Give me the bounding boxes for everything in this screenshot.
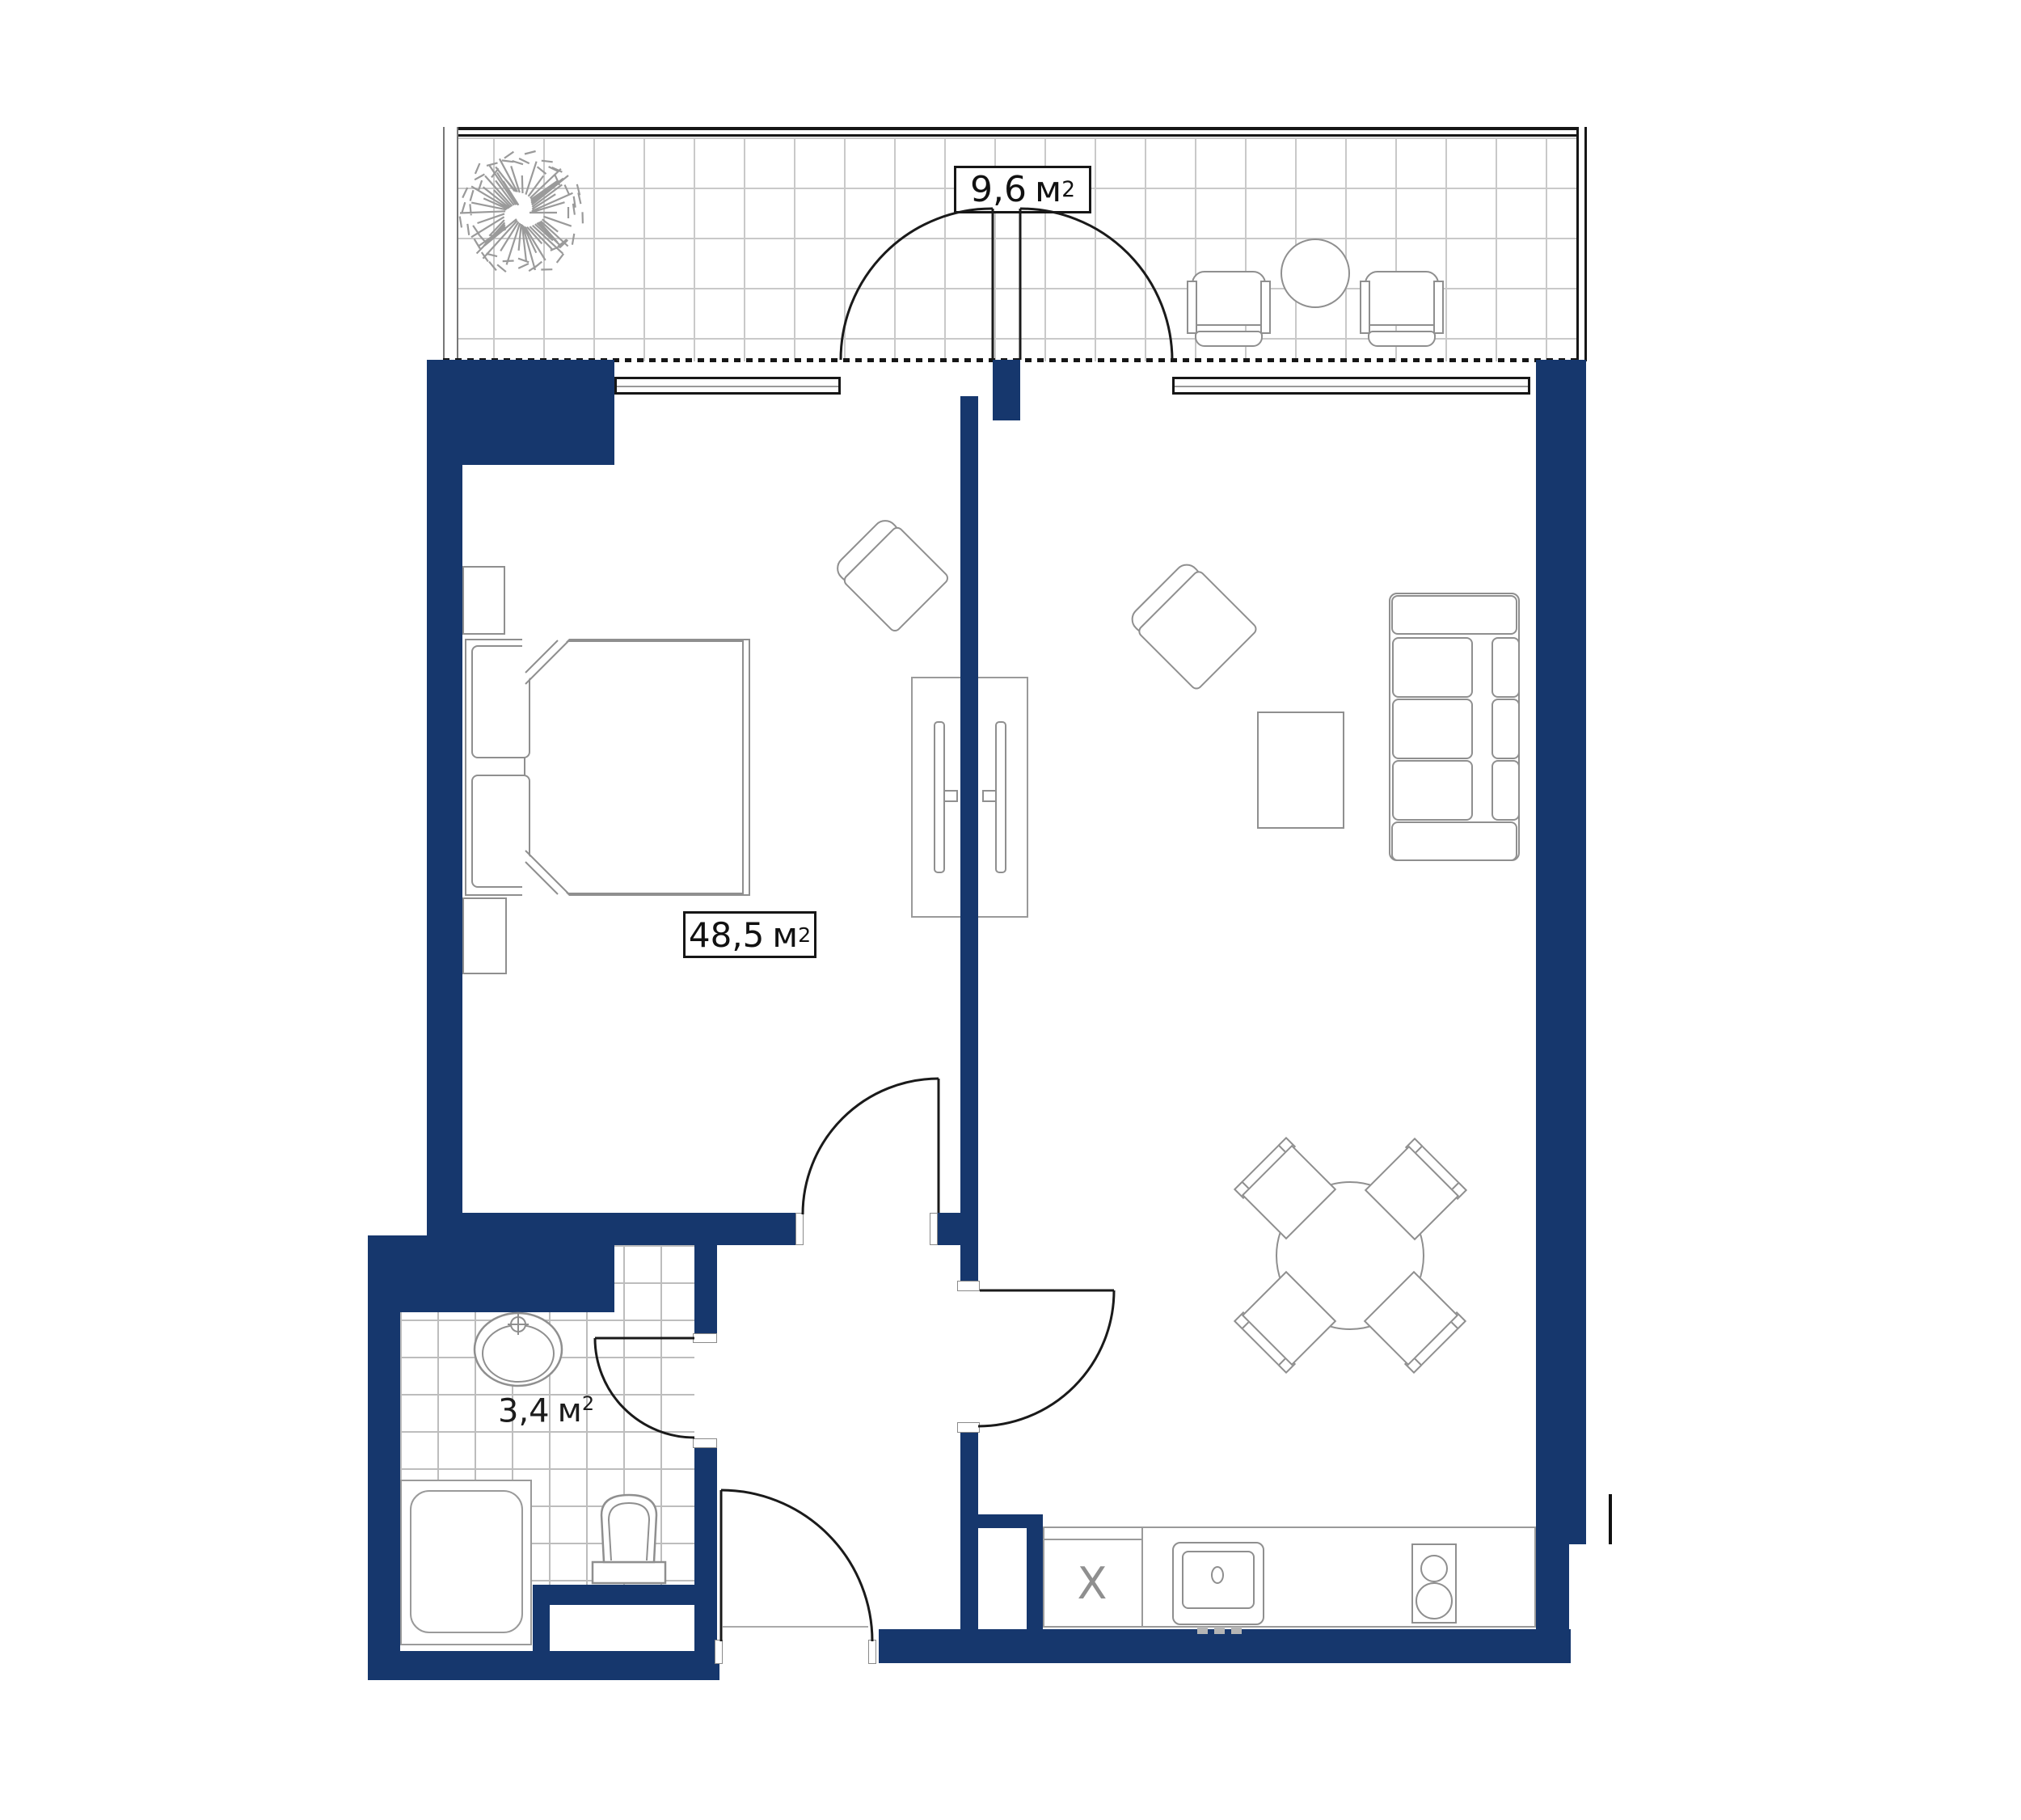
dimension-tick	[1609, 1494, 1612, 1544]
stove	[1411, 1543, 1457, 1624]
balcony-right-wall	[1576, 127, 1587, 361]
balcony-area-label: 9,6м2	[954, 166, 1091, 213]
wall	[1027, 1514, 1043, 1629]
kitchen-counter-divider	[1141, 1528, 1143, 1626]
wall	[879, 1629, 1571, 1663]
door-jamb	[868, 1640, 876, 1664]
door-jamb	[693, 1438, 717, 1448]
door-arc	[978, 1290, 1114, 1426]
fridge-mark-label: Х	[1078, 1558, 1108, 1609]
wall	[533, 1585, 715, 1605]
living-room-door	[978, 1290, 1114, 1426]
wall	[427, 360, 614, 465]
bed-pillow-bottom	[471, 775, 530, 888]
bedroom-window	[614, 377, 841, 395]
door-jamb	[693, 1333, 717, 1343]
entry-door	[721, 1490, 872, 1641]
door-jamb	[957, 1422, 980, 1433]
wall	[694, 1438, 717, 1680]
fridge-cell: Х	[1044, 1540, 1140, 1626]
door-arc	[803, 1079, 939, 1214]
apartment-area-value: 48,5	[689, 915, 765, 955]
wall	[993, 360, 1020, 420]
nightstand-top	[462, 566, 505, 635]
shower-tray-inner	[410, 1490, 523, 1633]
door-jamb	[957, 1281, 980, 1291]
apartment-area-label: 48,5м2	[683, 911, 816, 958]
floor-plan: 9,6м2 Х	[0, 0, 2021, 1820]
wall	[960, 396, 978, 1245]
coffee-table	[1257, 712, 1344, 829]
balcony-chair-right-icon	[1360, 271, 1444, 347]
bed-blanket	[524, 640, 744, 894]
nightstand-bottom	[462, 897, 507, 974]
door-arc	[721, 1490, 872, 1641]
wall	[427, 465, 462, 1213]
wall	[694, 1245, 717, 1343]
balcony-top-wall	[443, 127, 1587, 137]
wall	[368, 1235, 614, 1312]
apartment-area-unit: м	[772, 915, 798, 955]
wall	[960, 1433, 978, 1629]
living-room-window	[1172, 377, 1530, 395]
door-jamb	[930, 1213, 938, 1245]
door-jamb	[715, 1640, 723, 1664]
balcony-table-icon	[1281, 239, 1350, 308]
wall	[1536, 360, 1586, 1544]
kitchen-sink-basin	[1182, 1551, 1255, 1609]
door-jamb	[795, 1213, 804, 1245]
wall	[368, 1312, 400, 1680]
bathroom-area-value: 3,4	[498, 1392, 550, 1429]
balcony-left-railing	[443, 127, 458, 361]
living-armchair-icon	[1133, 566, 1259, 692]
balcony-chair-left-icon	[1187, 271, 1271, 347]
wall	[368, 1651, 719, 1680]
bedroom-door	[803, 1079, 939, 1214]
sofa	[1389, 593, 1520, 861]
wall	[960, 1245, 978, 1281]
bed-pillow-top	[471, 645, 530, 758]
bedroom-armchair-icon	[839, 522, 951, 635]
bathroom-area-label: 3,4м2	[498, 1392, 594, 1429]
bathroom-area-unit: м	[558, 1392, 582, 1429]
balcony-area-value: 9,6	[970, 169, 1027, 210]
balcony-area-unit: м	[1035, 169, 1061, 210]
